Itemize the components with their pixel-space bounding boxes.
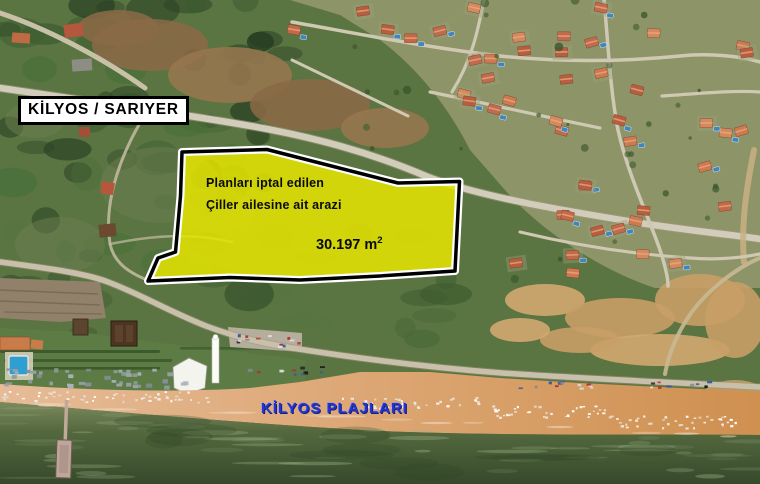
parcel-label: Planları iptal edilen Çiller ailesine ai… [206, 176, 342, 220]
parcel-area-exponent: 2 [377, 235, 382, 246]
ruin-building [111, 321, 137, 346]
beach-label: KİLYOS PLAJLARI [261, 400, 408, 417]
forest-house [63, 23, 84, 39]
parcel-label-line1: Planları iptal edilen [206, 176, 342, 191]
swimming-pool [9, 356, 28, 375]
club-building [31, 339, 44, 349]
forest-house [98, 223, 116, 238]
dirt-terrace [0, 278, 106, 322]
forest-house [12, 32, 31, 43]
region-label: KİLYOS / SARIYER [18, 96, 189, 125]
small-structure [73, 319, 88, 335]
parcel-label-line2: Çiller ailesine ait arazi [206, 198, 342, 213]
satellite-map: KİLYOS / SARIYER Planları iptal edilen Ç… [0, 0, 760, 484]
white-tower [212, 335, 219, 384]
club-building [0, 337, 30, 350]
parcel-area-value: 30.197 m [316, 237, 377, 253]
parcel-area-label: 30.197 m2 [316, 235, 383, 253]
forest-house [72, 58, 93, 71]
forest-house [100, 181, 115, 195]
forest-house [79, 127, 90, 137]
